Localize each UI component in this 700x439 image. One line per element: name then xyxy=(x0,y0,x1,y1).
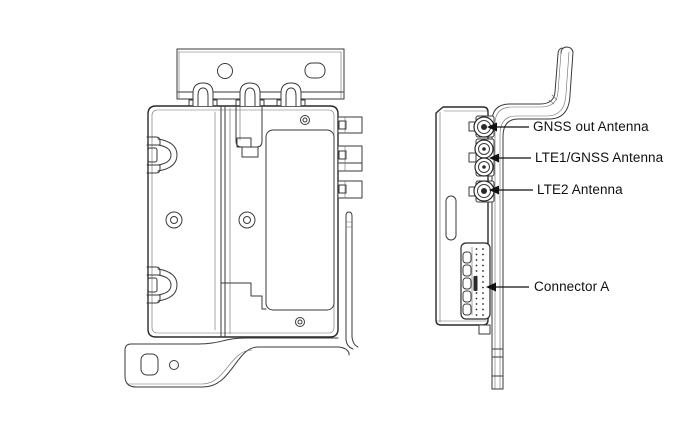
callout-label-connector-a: Connector A xyxy=(534,279,609,295)
mounting-foot xyxy=(125,338,349,387)
antenna-stub-lte2 xyxy=(338,181,362,198)
front-view xyxy=(125,49,362,387)
bracket-arch-clips xyxy=(189,83,305,106)
foot-slot-hole xyxy=(141,354,158,375)
callout-label-lte2-antenna: LTE2 Antenna xyxy=(537,182,623,198)
antenna-stub-gnss-out xyxy=(338,117,362,133)
callout-label-lte1-gnss-antenna: LTE1/GNSS Antenna xyxy=(535,150,663,166)
callout-arrow-lte2 xyxy=(489,186,533,195)
foot-round-hole xyxy=(170,361,179,370)
bracket-right-strip xyxy=(346,212,358,349)
body-bottom-flange xyxy=(479,325,490,334)
diagram-linework xyxy=(0,0,700,439)
antenna-location-diagram: GNSS out Antenna LTE1/GNSS Antenna LTE2 … xyxy=(0,0,700,439)
callout-label-gnss-out-antenna: GNSS out Antenna xyxy=(533,119,649,135)
antenna-stub-lte1-gnss xyxy=(338,146,362,171)
mounting-bracket-side xyxy=(492,47,573,389)
device-body-front xyxy=(147,106,338,337)
connector-a-block xyxy=(461,243,490,319)
side-view xyxy=(436,47,573,389)
